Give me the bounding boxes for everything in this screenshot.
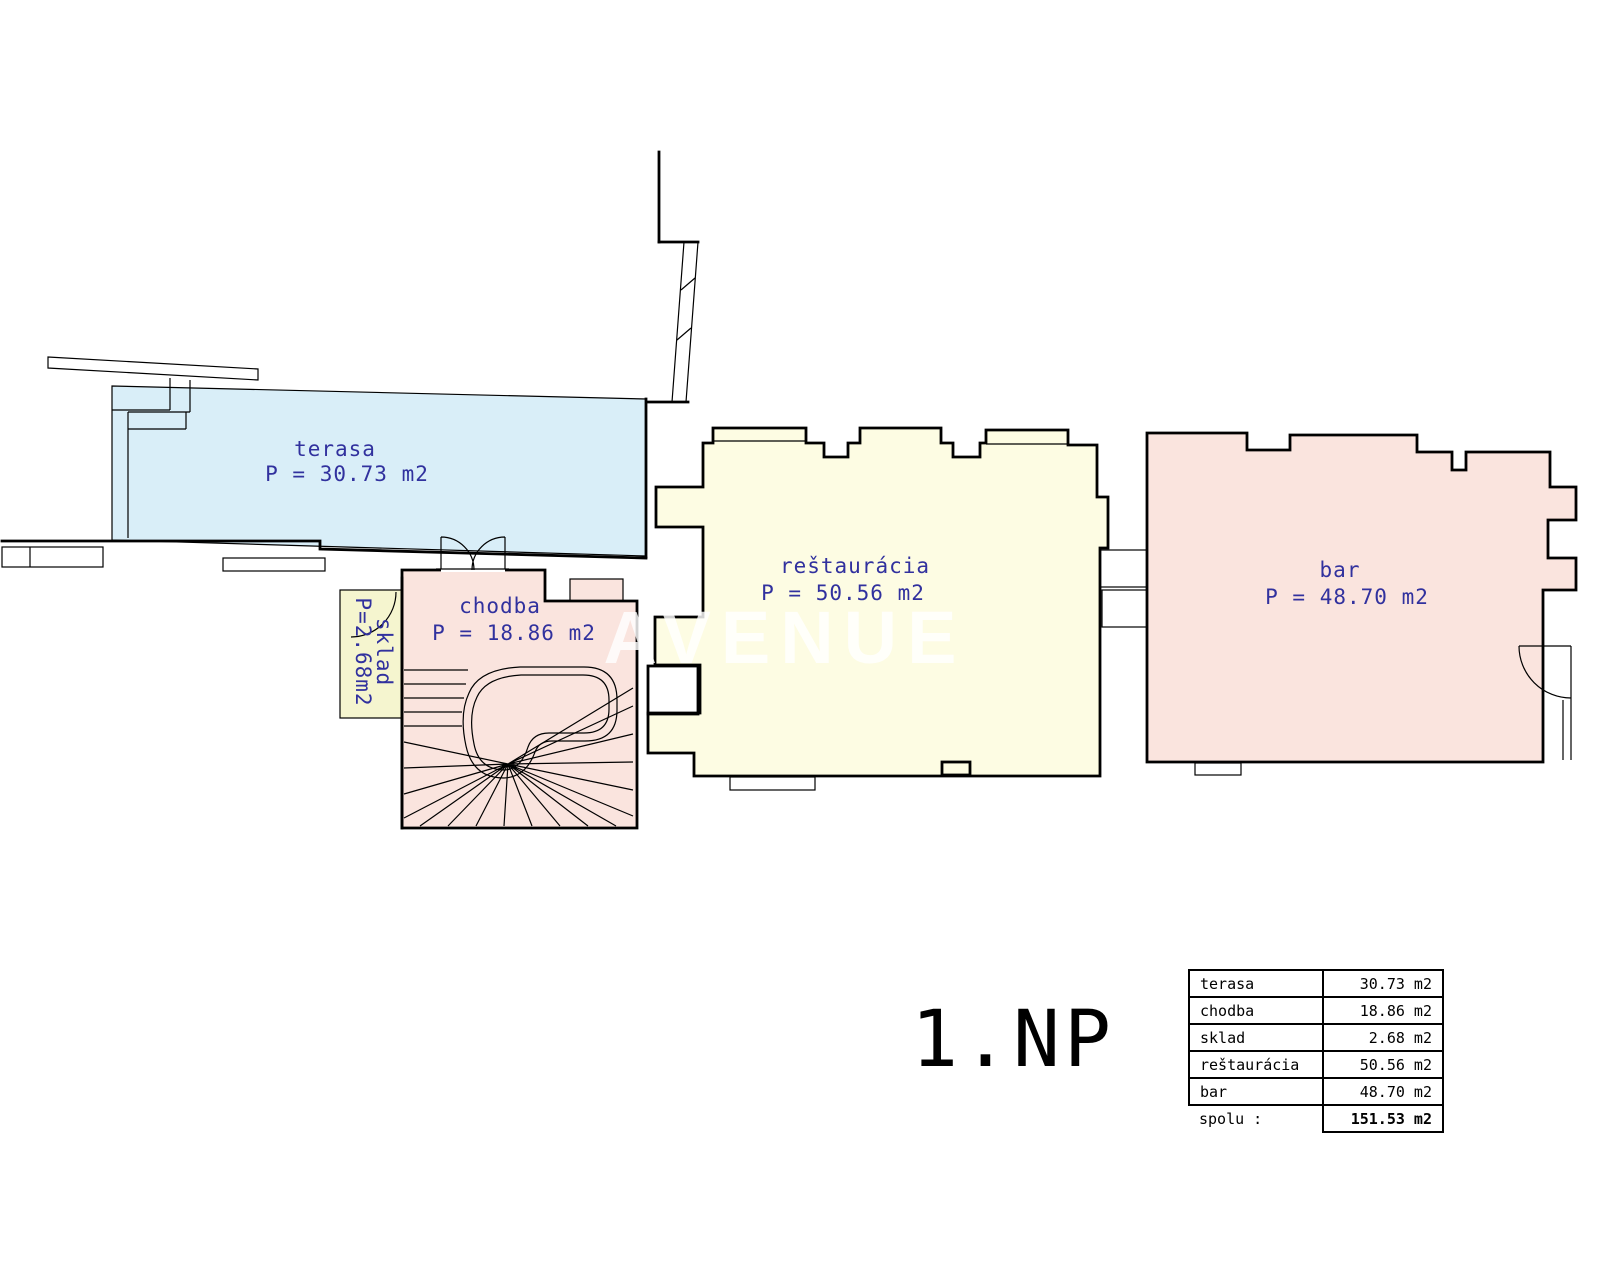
table-total-row: spolu : 151.53 m2 xyxy=(1189,1105,1443,1132)
room-area-cell: 48.70 m2 xyxy=(1323,1078,1443,1105)
room-area-cell: 50.56 m2 xyxy=(1323,1051,1443,1078)
table-row: terasa 30.73 m2 xyxy=(1189,970,1443,997)
upper-wall xyxy=(648,152,698,402)
watermark-text: AVENUE xyxy=(604,596,967,679)
passage-jamb-top xyxy=(1100,550,1147,587)
restauracia-area-label: P = 50.56 m2 xyxy=(761,581,925,605)
room-area-cell: 18.86 m2 xyxy=(1323,997,1443,1024)
chodba-room xyxy=(402,537,637,828)
terasa-label: terasa xyxy=(294,437,376,461)
floorplan-page: AVENUE terasa P = 30.73 m2 chodba P = 18… xyxy=(0,0,1600,1280)
floor-title: 1.NP xyxy=(911,995,1115,1085)
chodba-label: chodba xyxy=(459,594,541,618)
table-row: reštaurácia 50.56 m2 xyxy=(1189,1051,1443,1078)
room-name-cell: reštaurácia xyxy=(1189,1051,1323,1078)
bar-sill xyxy=(1195,763,1241,775)
terasa-area-label: P = 30.73 m2 xyxy=(265,462,429,486)
room-name-cell: terasa xyxy=(1189,970,1323,997)
room-name-cell: chodba xyxy=(1189,997,1323,1024)
restauracia-label: reštaurácia xyxy=(780,554,930,578)
table-row: sklad 2.68 m2 xyxy=(1189,1024,1443,1051)
bar-area-label: P = 48.70 m2 xyxy=(1265,585,1429,609)
room-name-cell: bar xyxy=(1189,1078,1323,1105)
room-area-cell: 30.73 m2 xyxy=(1323,970,1443,997)
area-legend-table: terasa 30.73 m2 chodba 18.86 m2 sklad 2.… xyxy=(1188,969,1444,1133)
room-name-cell: sklad xyxy=(1189,1024,1323,1051)
passage-jamb-bottom xyxy=(1102,590,1147,627)
terasa-edge-bar xyxy=(48,357,258,380)
bar-label: bar xyxy=(1320,558,1361,582)
total-label-cell: spolu : xyxy=(1189,1105,1323,1132)
chodba-area-label: P = 18.86 m2 xyxy=(432,621,596,645)
terasa-sill-right xyxy=(223,558,325,571)
upper-wall-thin-lines xyxy=(672,242,698,402)
sklad-area-label: P=2.68m2 xyxy=(351,597,375,706)
room-area-cell: 2.68 m2 xyxy=(1323,1024,1443,1051)
restauracia-sill xyxy=(730,777,815,790)
total-value-cell: 151.53 m2 xyxy=(1323,1105,1443,1132)
table-row: bar 48.70 m2 xyxy=(1189,1078,1443,1105)
table-row: chodba 18.86 m2 xyxy=(1189,997,1443,1024)
terasa-sill-left xyxy=(2,547,103,567)
